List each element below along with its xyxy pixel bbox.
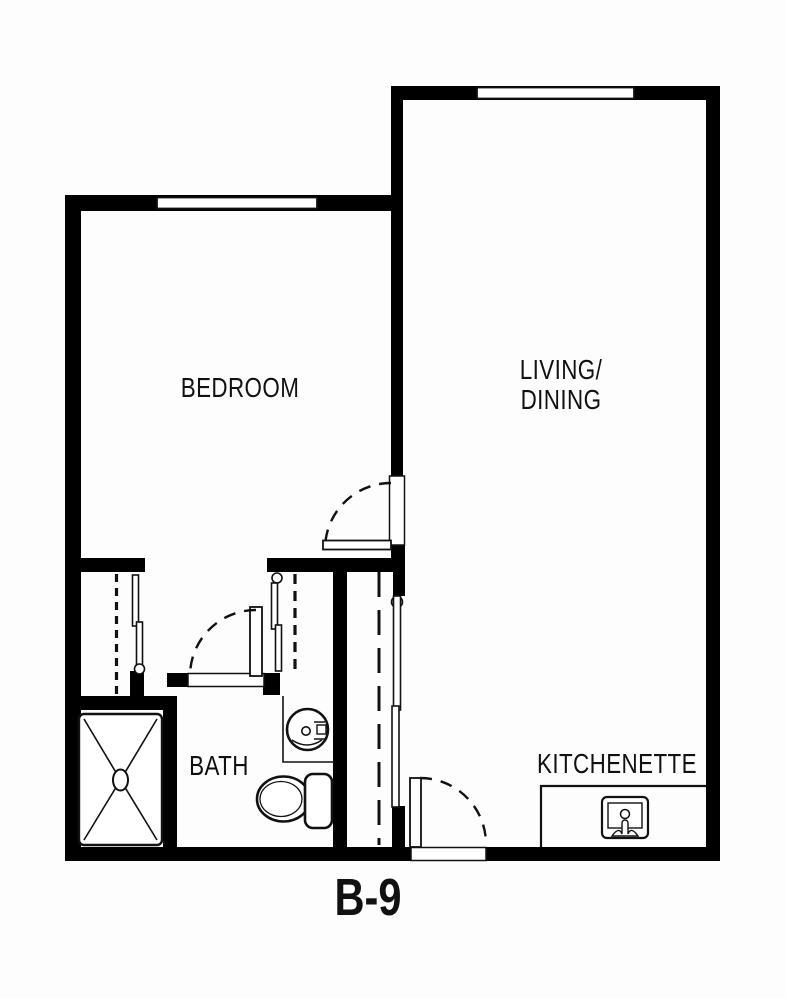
vestibule-closet-panel-2 [276,625,282,671]
living-label-line2: DINING [520,385,602,415]
floor-plan: BEDROOM LIVING/ DINING BATH KITCHENETTE … [0,0,785,998]
wardrobe-east-stub-top [393,572,405,596]
living-label-line1: LIVING/ [520,355,602,385]
toilet-tank [305,774,332,828]
living-window [477,88,634,99]
bath-sink-drain [302,727,310,735]
bath-door-wall-west [167,673,189,687]
bottom-exterior-wall [65,847,720,861]
bedroom-window [157,198,317,209]
entry-door-opening [411,848,486,861]
vestibule-closet-panel-1 [272,583,278,629]
kitchen-sink-drain [621,810,630,819]
entry-door-swing-arc [420,778,486,844]
wardrobe-west-wall [333,558,347,847]
bedroom-closet-stub [130,671,144,697]
wardrobe-east-stub-bottom [392,806,405,847]
vestibule-closet-stub [263,673,280,695]
floor-plan-drawing [0,0,785,998]
wardrobe-panel-2 [392,706,399,807]
right-exterior-wall [706,86,720,861]
living-bedroom-wall-upper [391,100,403,477]
shower-east-wall [163,710,177,847]
bedroom-bottom-wall-west [65,558,145,572]
living-dining-label: LIVING/ DINING [520,355,602,415]
kitchenette-label: KITCHENETTE [537,749,697,779]
shower-drain [113,770,128,791]
vestibule-closet-pivot [272,573,282,583]
bedroom-door-leaf [323,541,391,550]
bedroom-closet-pivot [135,664,145,674]
bath-sink-faucet [317,725,326,734]
bedroom-door-opening [390,476,405,545]
bath-door-swing-arc [190,610,256,676]
bath-label: BATH [189,751,249,781]
bedroom-door-swing-arc [325,483,391,549]
entry-door-leaf [410,778,421,847]
shower-top-wall [65,696,177,710]
bedroom-closet-panel-1 [133,575,139,626]
bedroom-label: BEDROOM [181,373,300,403]
wardrobe-panel-1 [394,596,401,710]
bath-door-leaf [250,607,262,676]
unit-label: B-9 [334,868,401,928]
